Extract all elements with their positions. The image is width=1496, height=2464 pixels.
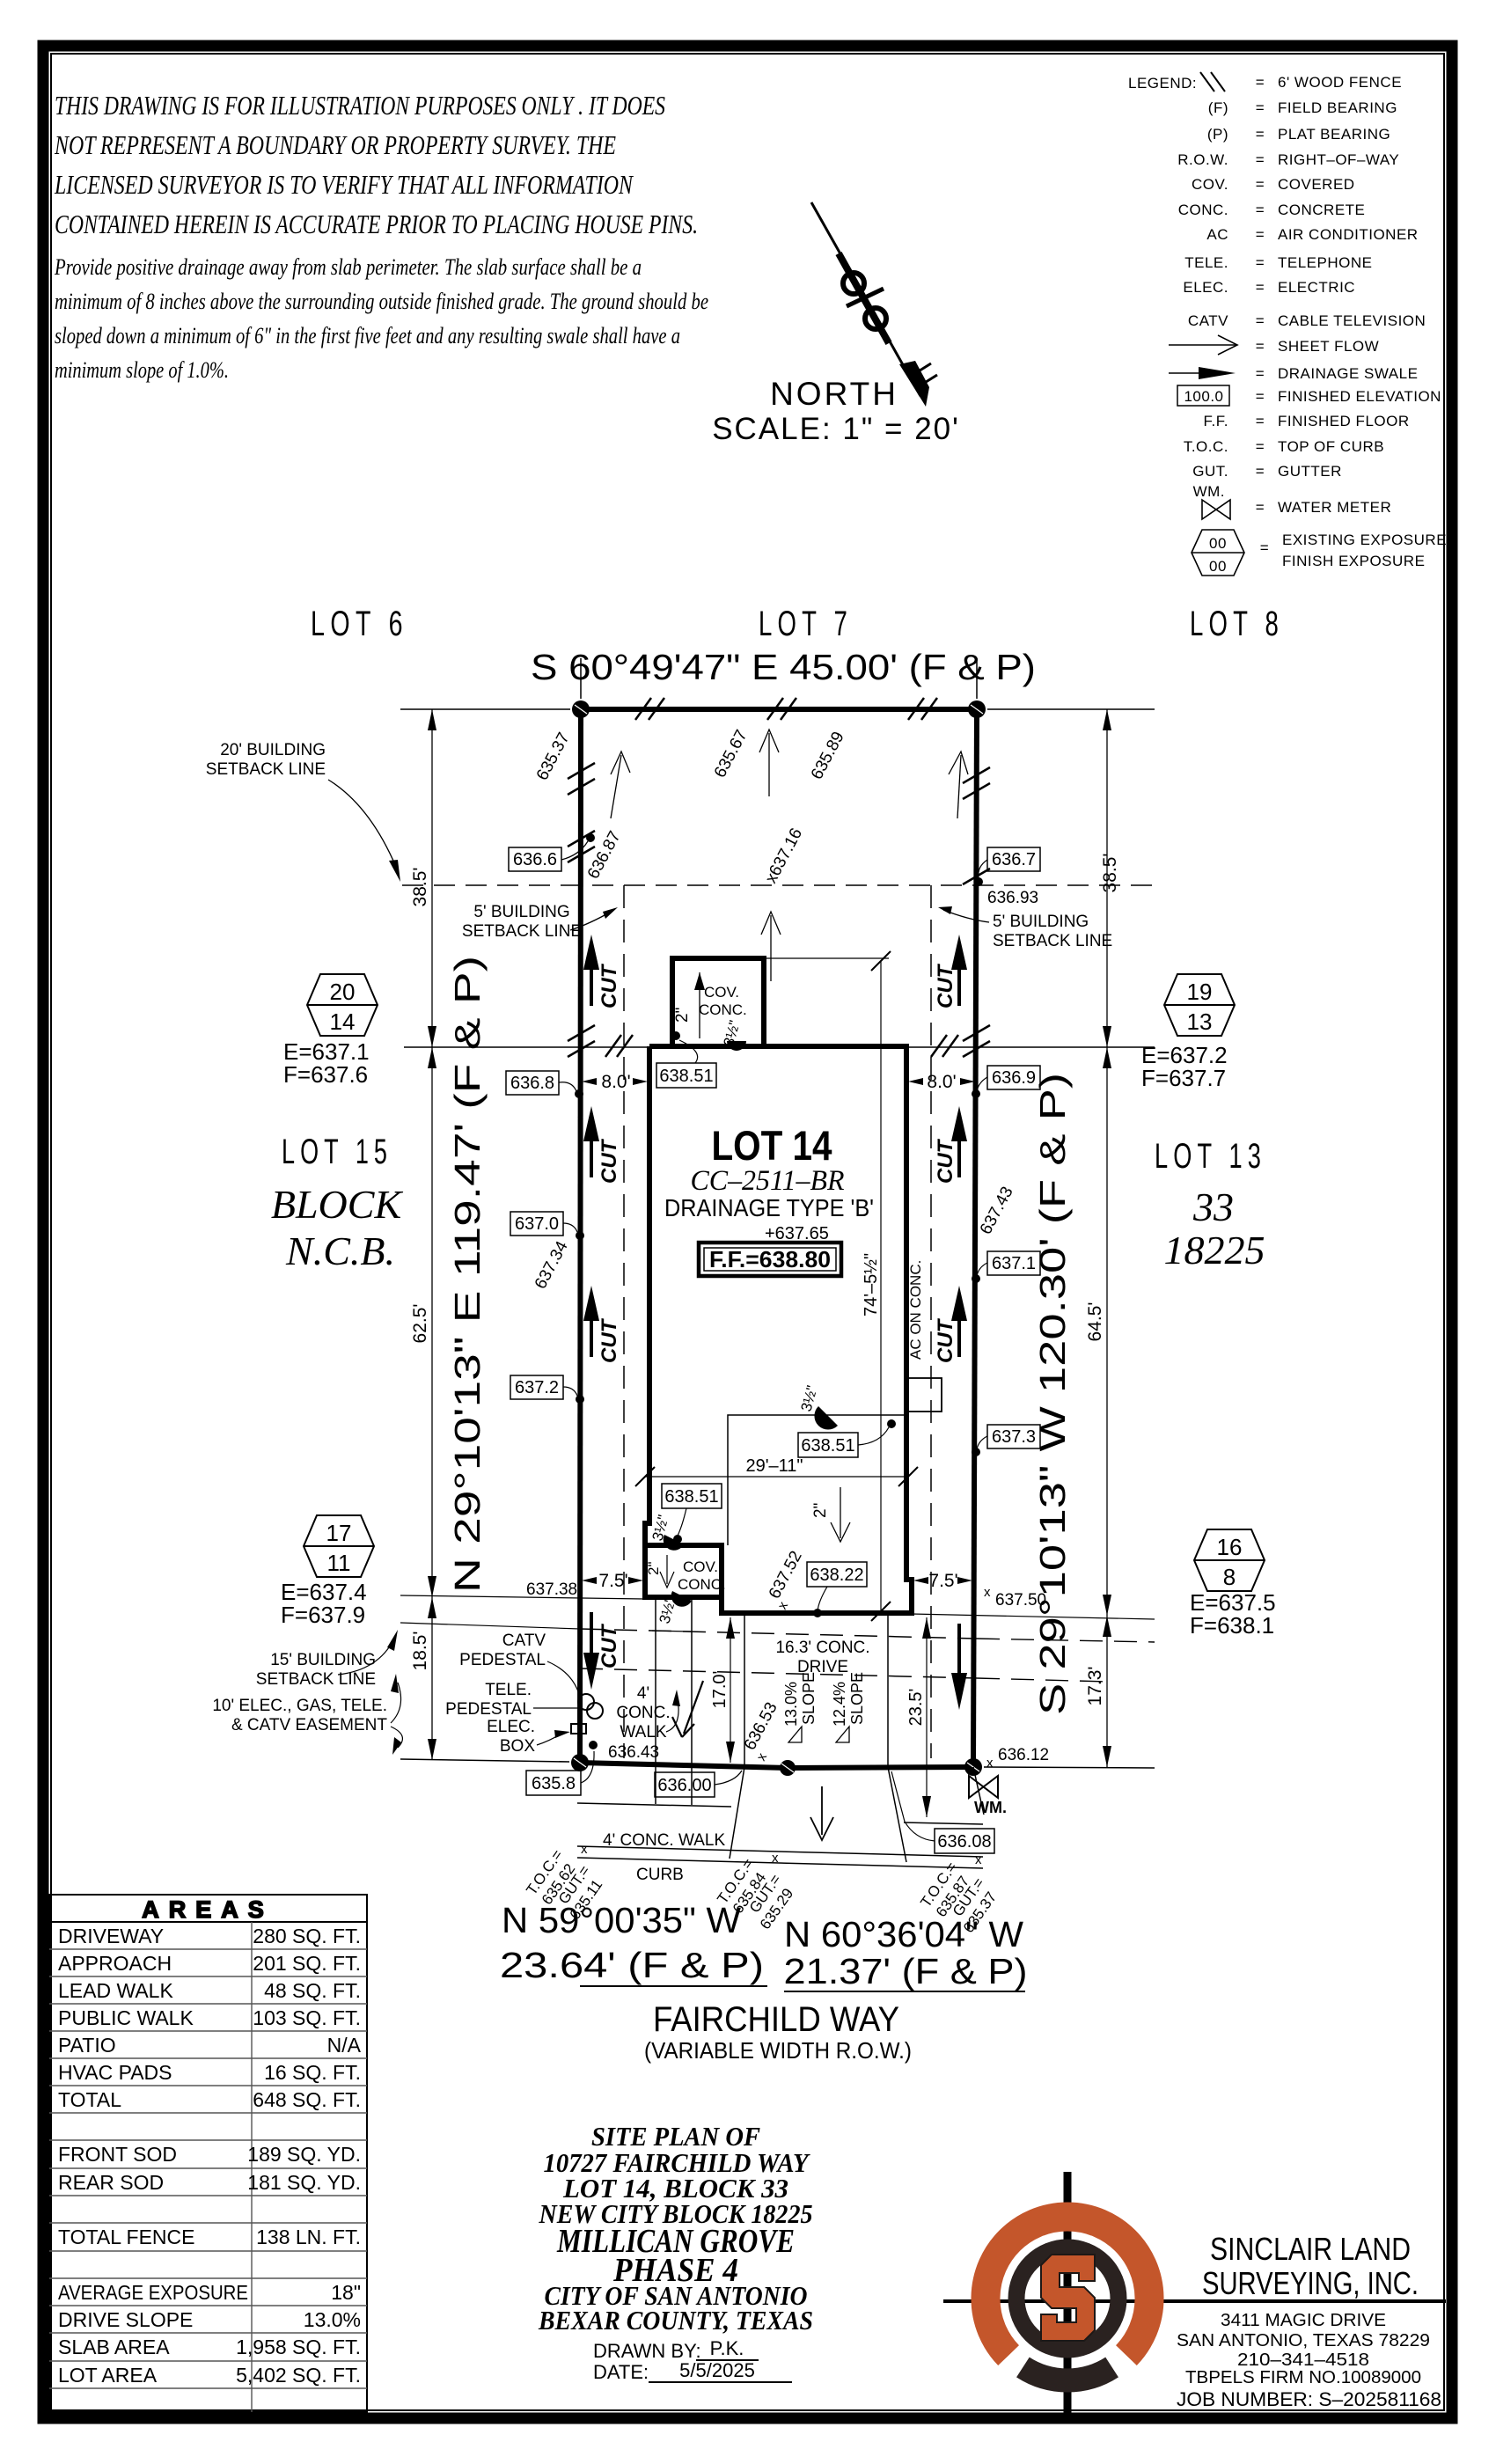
svg-text:N.C.B.: N.C.B. [285, 1228, 395, 1273]
svg-text:SETBACK LINE: SETBACK LINE [462, 922, 582, 941]
svg-text:F.F.=638.80: F.F.=638.80 [709, 1246, 831, 1272]
svg-text:=: = [1256, 499, 1265, 516]
svg-text:2": 2" [673, 1008, 692, 1023]
svg-text:=: = [1256, 388, 1265, 405]
svg-text:17.3': 17.3' [1085, 1667, 1105, 1706]
svg-text:LOT 13: LOT 13 [1155, 1137, 1266, 1176]
svg-text:189 SQ. YD.: 189 SQ. YD. [247, 2143, 361, 2166]
svg-text:WALK: WALK [620, 1723, 666, 1742]
svg-text:SLOPE: SLOPE [848, 1672, 866, 1725]
svg-text:F=637.6: F=637.6 [283, 1061, 368, 1088]
svg-text:CONC.: CONC. [1178, 202, 1228, 218]
svg-text:SLOPE: SLOPE [800, 1672, 818, 1725]
svg-text:ELEC.: ELEC. [1183, 279, 1228, 296]
svg-text:AC ON CONC.: AC ON CONC. [907, 1260, 924, 1360]
svg-text:=: = [1256, 202, 1265, 218]
svg-text:LICENSED SURVEYOR IS TO VERIFY: LICENSED SURVEYOR IS TO VERIFY THAT ALL … [54, 169, 634, 200]
svg-text:201 SQ. FT.: 201 SQ. FT. [253, 1952, 361, 1975]
svg-text:TBPELS FIRM NO.10089000: TBPELS FIRM NO.10089000 [1185, 2368, 1421, 2387]
svg-text:AIR CONDITIONER: AIR CONDITIONER [1278, 226, 1419, 243]
svg-text:WM.: WM. [974, 1799, 1007, 1816]
svg-text:38.5': 38.5' [1100, 854, 1120, 893]
svg-text:LEAD WALK: LEAD WALK [58, 1979, 173, 2002]
svg-text:5,402 SQ. FT.: 5,402 SQ. FT. [236, 2364, 361, 2387]
svg-text:BEXAR COUNTY, TEXAS: BEXAR COUNTY, TEXAS [538, 2305, 813, 2336]
svg-text:SHEET FLOW: SHEET FLOW [1278, 338, 1379, 355]
svg-text:19: 19 [1187, 979, 1213, 1005]
svg-text:AVERAGE EXPOSURE: AVERAGE EXPOSURE [58, 2281, 248, 2304]
svg-text:N 29°10'13" E 119.47' (F &: N 29°10'13" E 119.47' (F & P) [447, 956, 488, 1593]
svg-text:SETBACK LINE: SETBACK LINE [206, 760, 326, 779]
svg-text:=: = [1256, 338, 1265, 355]
svg-text:REAR SOD: REAR SOD [58, 2171, 164, 2194]
svg-text:R.O.W.: R.O.W. [1177, 151, 1228, 168]
svg-text:=: = [1256, 413, 1265, 429]
svg-text:3411 MAGIC DRIVE: 3411 MAGIC DRIVE [1221, 2311, 1386, 2330]
svg-text:280 SQ. FT.: 280 SQ. FT. [253, 1925, 361, 1947]
svg-text:DRIVE SLOPE: DRIVE SLOPE [58, 2308, 193, 2331]
svg-text:21.37' (F & P): 21.37' (F & P) [784, 1951, 1028, 1991]
svg-text:EXISTING EXPOSURE: EXISTING EXPOSURE [1282, 532, 1447, 548]
svg-text:BLOCK: BLOCK [271, 1182, 404, 1227]
svg-text:CUT: CUT [934, 1317, 957, 1363]
svg-text:WATER METER: WATER METER [1278, 499, 1391, 516]
svg-text:CABLE TELEVISION: CABLE TELEVISION [1278, 312, 1426, 329]
svg-text:FRONT SOD: FRONT SOD [58, 2143, 177, 2166]
svg-text:sloped down a minimum of 6" in: sloped down a minimum of 6" in the first… [55, 323, 680, 348]
svg-text:COV.: COV. [1192, 176, 1228, 193]
svg-text:Provide positive drainage away: Provide positive drainage away from slab… [54, 254, 642, 280]
svg-text:=: = [1256, 151, 1265, 168]
svg-text:P.K.: P.K. [710, 2337, 744, 2359]
svg-text:T.O.C.: T.O.C. [1184, 438, 1228, 455]
svg-text:DRAINAGE SWALE: DRAINAGE SWALE [1278, 365, 1418, 382]
svg-text:S 29°10'13" W 120.30' (F &: S 29°10'13" W 120.30' (F & P) [1032, 1073, 1073, 1715]
svg-text:14: 14 [330, 1008, 356, 1035]
svg-text:minimum slope of 1.0%.: minimum slope of 1.0%. [55, 357, 229, 383]
svg-text:5' BUILDING: 5' BUILDING [993, 913, 1089, 931]
svg-text:TELE.: TELE. [485, 1681, 532, 1699]
svg-text:=: = [1256, 226, 1265, 243]
svg-text:29'–11": 29'–11" [745, 1456, 803, 1476]
svg-text:638.51: 638.51 [659, 1067, 713, 1086]
svg-text:636.00: 636.00 [657, 1776, 711, 1795]
svg-text:638.51: 638.51 [801, 1436, 854, 1456]
svg-text:WM.: WM. [1193, 483, 1225, 500]
svg-text:SINCLAIR LAND: SINCLAIR LAND [1210, 2231, 1411, 2267]
svg-text:8.0': 8.0' [601, 1072, 630, 1092]
svg-text:FINISHED FLOOR: FINISHED FLOOR [1278, 413, 1410, 429]
svg-text:(F): (F) [1208, 99, 1228, 116]
svg-text:minimum of 8 inches above the: minimum of 8 inches above the surroundin… [55, 289, 708, 314]
svg-text:636.9: 636.9 [992, 1068, 1036, 1088]
svg-text:CONC.: CONC. [678, 1576, 726, 1593]
svg-text:APPROACH: APPROACH [58, 1952, 172, 1975]
svg-text:20' BUILDING: 20' BUILDING [220, 741, 326, 759]
svg-text:COVERED: COVERED [1278, 176, 1355, 193]
svg-text:& CATV EASEMENT: & CATV EASEMENT [231, 1716, 387, 1734]
svg-text:THIS DRAWING IS FOR ILLUSTRATI: THIS DRAWING IS FOR ILLUSTRATION PURPOSE… [55, 90, 665, 121]
svg-text:638.51: 638.51 [664, 1487, 718, 1507]
svg-text:LEGEND:: LEGEND: [1128, 75, 1197, 92]
svg-text:(P): (P) [1207, 126, 1228, 143]
svg-text:TOTAL: TOTAL [58, 2088, 121, 2111]
svg-text:F=637.9: F=637.9 [281, 1602, 365, 1628]
svg-text:FINISH EXPOSURE: FINISH EXPOSURE [1282, 553, 1425, 569]
svg-text:x: x [581, 1842, 588, 1857]
svg-text:18": 18" [331, 2281, 361, 2304]
svg-text:SAN ANTONIO, TEXAS 78229: SAN ANTONIO, TEXAS 78229 [1177, 2331, 1430, 2350]
svg-text:DATE:: DATE: [593, 2361, 649, 2383]
svg-text:CATV: CATV [1188, 312, 1228, 329]
svg-text:8.0': 8.0' [927, 1072, 956, 1092]
svg-text:2": 2" [645, 1562, 662, 1576]
svg-text:6' WOOD FENCE: 6' WOOD FENCE [1278, 74, 1402, 91]
svg-text:5' BUILDING: 5' BUILDING [473, 903, 569, 921]
svg-text:ELECTRIC: ELECTRIC [1278, 279, 1355, 296]
svg-text:PLAT BEARING: PLAT BEARING [1278, 126, 1390, 143]
svg-text:AC: AC [1206, 226, 1228, 243]
svg-text:16.3' CONC.: 16.3' CONC. [775, 1639, 869, 1657]
svg-text:23.5': 23.5' [906, 1689, 926, 1727]
svg-text:x: x [772, 1851, 779, 1866]
svg-text:23.64' (F & P): 23.64' (F & P) [500, 1945, 764, 1985]
svg-text:635.8: 635.8 [532, 1774, 576, 1793]
svg-text:636.43: 636.43 [608, 1743, 659, 1762]
svg-text:RIGHT–OF–WAY: RIGHT–OF–WAY [1278, 151, 1399, 168]
svg-text:FIELD BEARING: FIELD BEARING [1278, 99, 1397, 116]
svg-text:2": 2" [811, 1503, 830, 1518]
svg-text:210–341–4518: 210–341–4518 [1237, 2350, 1369, 2370]
svg-text:FINISHED ELEVATION: FINISHED ELEVATION [1278, 388, 1441, 405]
svg-text:636.8: 636.8 [510, 1074, 554, 1093]
svg-text:PEDESTAL: PEDESTAL [459, 1651, 546, 1669]
svg-text:17: 17 [326, 1520, 352, 1546]
svg-text:=: = [1256, 126, 1265, 143]
svg-text:N/A: N/A [327, 2034, 362, 2057]
svg-text:12.4%: 12.4% [831, 1682, 848, 1727]
svg-text:SETBACK LINE: SETBACK LINE [256, 1670, 376, 1689]
svg-text:CONCRETE: CONCRETE [1278, 202, 1365, 218]
svg-text:SURVEYING, INC.: SURVEYING, INC. [1202, 2265, 1419, 2301]
svg-text:4': 4' [637, 1684, 649, 1703]
svg-text:(VARIABLE WIDTH R.O.W.): (VARIABLE WIDTH R.O.W.) [644, 2037, 912, 2064]
svg-text:COV.: COV. [704, 984, 739, 1001]
svg-text:62.5': 62.5' [410, 1304, 430, 1344]
svg-text:48 SQ. FT.: 48 SQ. FT. [264, 1979, 361, 2002]
svg-text:CONC.: CONC. [616, 1704, 670, 1722]
svg-text:TOTAL FENCE: TOTAL FENCE [58, 2226, 195, 2248]
svg-text:NOT REPRESENT A BOUNDARY OR PR: NOT REPRESENT A BOUNDARY OR PROPERTY SUR… [54, 129, 616, 160]
svg-text:18225: 18225 [1164, 1228, 1265, 1272]
svg-text:637.38: 637.38 [526, 1580, 577, 1599]
svg-text:COV.: COV. [683, 1558, 718, 1575]
svg-text:PATIO: PATIO [58, 2034, 116, 2057]
svg-text:74'–5½": 74'–5½" [862, 1253, 881, 1316]
svg-text:F.F.: F.F. [1204, 413, 1228, 429]
svg-text:10' ELEC., GAS, TELE.: 10' ELEC., GAS, TELE. [212, 1697, 387, 1715]
svg-text:=: = [1260, 539, 1269, 556]
svg-text:11: 11 [327, 1550, 351, 1576]
svg-text:HVAC PADS: HVAC PADS [58, 2061, 172, 2084]
svg-text:=: = [1256, 463, 1265, 480]
svg-text:=: = [1256, 176, 1265, 193]
svg-text:JOB NUMBER: S–202581168: JOB NUMBER: S–202581168 [1177, 2388, 1441, 2410]
svg-text:SCALE: 1" = 20': SCALE: 1" = 20' [712, 412, 960, 446]
svg-text:00: 00 [1209, 535, 1227, 552]
svg-text:CC–2511–BR: CC–2511–BR [691, 1165, 845, 1197]
svg-text:637.2: 637.2 [515, 1378, 559, 1397]
svg-text:637.0: 637.0 [515, 1214, 559, 1234]
svg-text:33: 33 [1192, 1184, 1234, 1229]
svg-text:18.5': 18.5' [410, 1632, 430, 1671]
svg-text:LOT 6: LOT 6 [311, 605, 408, 643]
svg-text:CUT: CUT [598, 1317, 621, 1363]
svg-text:x: x [975, 1852, 982, 1867]
svg-text:15' BUILDING: 15' BUILDING [270, 1651, 376, 1669]
svg-text:LOT 8: LOT 8 [1190, 605, 1284, 643]
svg-text:1,958 SQ. FT.: 1,958 SQ. FT. [236, 2336, 361, 2358]
svg-text:NORTH: NORTH [770, 376, 898, 412]
svg-text:SETBACK LINE: SETBACK LINE [993, 932, 1112, 950]
svg-text:100.0: 100.0 [1184, 388, 1223, 405]
svg-text:13.0%: 13.0% [304, 2308, 361, 2331]
svg-text:64.5': 64.5' [1085, 1302, 1105, 1342]
svg-text:TELE.: TELE. [1184, 254, 1228, 271]
svg-text:7.5': 7.5' [598, 1571, 627, 1591]
svg-text:636.6: 636.6 [513, 850, 557, 869]
svg-text:=: = [1256, 438, 1265, 455]
svg-text:636.7: 636.7 [992, 850, 1036, 869]
svg-text:=: = [1256, 365, 1265, 382]
svg-text:103 SQ. FT.: 103 SQ. FT. [253, 2006, 361, 2029]
svg-text:636.12: 636.12 [998, 1746, 1049, 1764]
svg-text:BOX: BOX [500, 1737, 535, 1756]
svg-text:CUT: CUT [598, 1138, 621, 1184]
svg-text:x: x [984, 1585, 991, 1600]
svg-text:CONTAINED HEREIN IS ACCURATE P: CONTAINED HEREIN IS ACCURATE PRIOR TO PL… [55, 209, 698, 239]
svg-text:13: 13 [1187, 1008, 1213, 1035]
svg-text:638.22: 638.22 [810, 1566, 863, 1585]
svg-text:13.0%: 13.0% [782, 1682, 800, 1727]
svg-text:636.93: 636.93 [987, 889, 1038, 907]
svg-text:637.1: 637.1 [992, 1254, 1036, 1273]
svg-text:=: = [1256, 74, 1265, 91]
svg-text:F=637.7: F=637.7 [1141, 1065, 1226, 1091]
svg-text:SLAB AREA: SLAB AREA [58, 2336, 170, 2358]
svg-text:GUTTER: GUTTER [1278, 463, 1342, 480]
svg-text:CURB: CURB [636, 1866, 684, 1884]
svg-text:20: 20 [330, 979, 356, 1005]
svg-text:CUT: CUT [934, 963, 957, 1008]
svg-text:LOT 7: LOT 7 [759, 605, 853, 643]
svg-text:8: 8 [1223, 1564, 1236, 1590]
svg-text:38.5': 38.5' [410, 868, 430, 907]
svg-text:17.0': 17.0' [710, 1671, 730, 1709]
svg-text:PEDESTAL: PEDESTAL [445, 1700, 532, 1719]
svg-text:16 SQ. FT.: 16 SQ. FT. [264, 2061, 361, 2084]
svg-text:636.08: 636.08 [937, 1832, 991, 1852]
svg-text:=: = [1256, 312, 1265, 329]
svg-text:ELEC.: ELEC. [487, 1718, 535, 1736]
svg-text:LOT AREA: LOT AREA [58, 2364, 158, 2387]
svg-text:AREAS: AREAS [142, 1896, 274, 1923]
svg-text:181 SQ. YD.: 181 SQ. YD. [247, 2171, 361, 2194]
svg-text:16: 16 [1217, 1534, 1243, 1560]
svg-text:CATV: CATV [502, 1632, 546, 1650]
svg-text:x: x [986, 1756, 994, 1771]
svg-text:TELEPHONE: TELEPHONE [1278, 254, 1372, 271]
svg-text:00: 00 [1209, 558, 1227, 575]
svg-text:CONC.: CONC. [699, 1001, 747, 1018]
svg-text:S 60°49'47" E 45.00' (F & P): S 60°49'47" E 45.00' (F & P) [531, 647, 1036, 687]
svg-text:5/5/2025: 5/5/2025 [679, 2359, 755, 2381]
svg-text:DRIVEWAY: DRIVEWAY [58, 1925, 164, 1947]
svg-text:637.3: 637.3 [992, 1427, 1036, 1447]
svg-text:GUT.: GUT. [1192, 463, 1228, 480]
svg-text:637.50: 637.50 [995, 1591, 1046, 1610]
svg-text:138 LN. FT.: 138 LN. FT. [256, 2226, 361, 2248]
svg-text:CUT: CUT [934, 1138, 957, 1184]
svg-text:=: = [1256, 254, 1265, 271]
svg-text:648 SQ. FT.: 648 SQ. FT. [253, 2088, 361, 2111]
svg-text:LOT 15: LOT 15 [282, 1133, 392, 1171]
svg-text:N 59°00'35" W: N 59°00'35" W [502, 1900, 741, 1940]
svg-text:F=638.1: F=638.1 [1190, 1612, 1274, 1639]
svg-text:=: = [1256, 99, 1265, 116]
svg-text:N 60°36'04" W: N 60°36'04" W [784, 1914, 1023, 1954]
svg-text:LOT 14: LOT 14 [712, 1122, 832, 1169]
svg-text:+637.65: +637.65 [765, 1224, 829, 1243]
svg-text:DRAINAGE TYPE 'B': DRAINAGE TYPE 'B' [664, 1194, 874, 1221]
svg-text:FAIRCHILD WAY: FAIRCHILD WAY [653, 2000, 899, 2039]
svg-text:PUBLIC WALK: PUBLIC WALK [58, 2006, 194, 2029]
svg-text:TOP OF CURB: TOP OF CURB [1278, 438, 1384, 455]
svg-text:4' CONC. WALK: 4' CONC. WALK [603, 1831, 725, 1850]
svg-text:=: = [1256, 279, 1265, 296]
svg-text:CUT: CUT [598, 963, 621, 1008]
svg-text:7.5': 7.5' [928, 1571, 957, 1591]
